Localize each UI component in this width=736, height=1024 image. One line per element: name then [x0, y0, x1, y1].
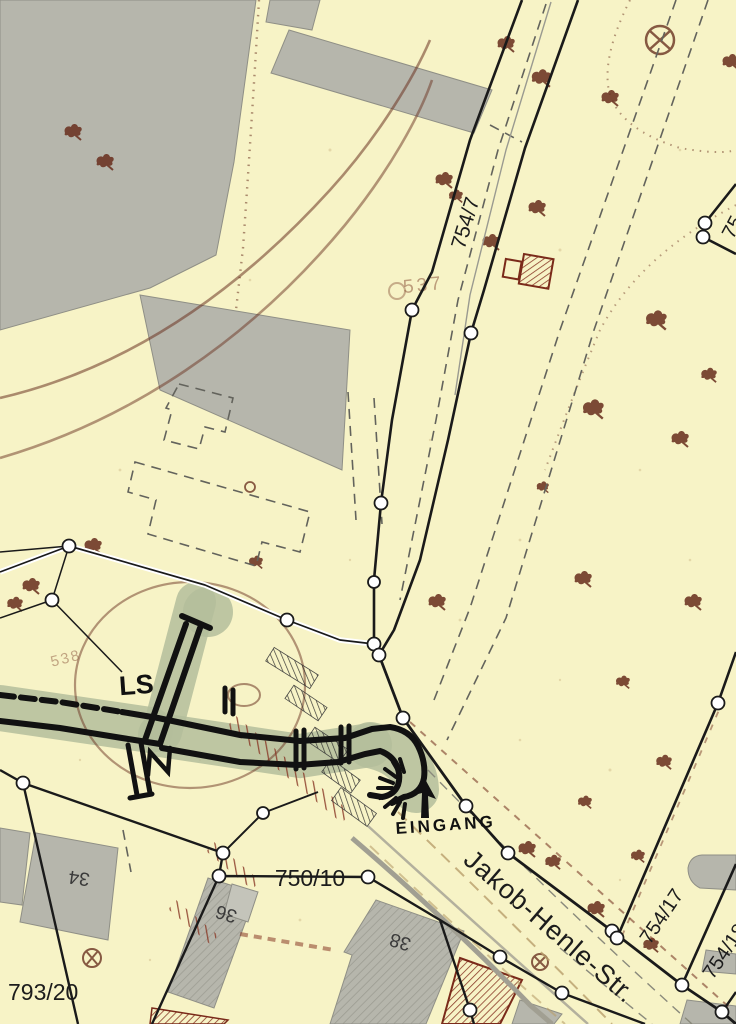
label-shelter-ls: LS: [118, 669, 155, 701]
building-right-edge: [688, 855, 736, 890]
cadastral-map: 537 538: [0, 0, 736, 1024]
label-parcel-793-20: 793/20: [8, 979, 78, 1005]
map-canvas: 537 538: [0, 0, 736, 1024]
label-parcel-750-10: 750/10: [275, 865, 345, 891]
label-house-34: 34: [67, 866, 91, 890]
